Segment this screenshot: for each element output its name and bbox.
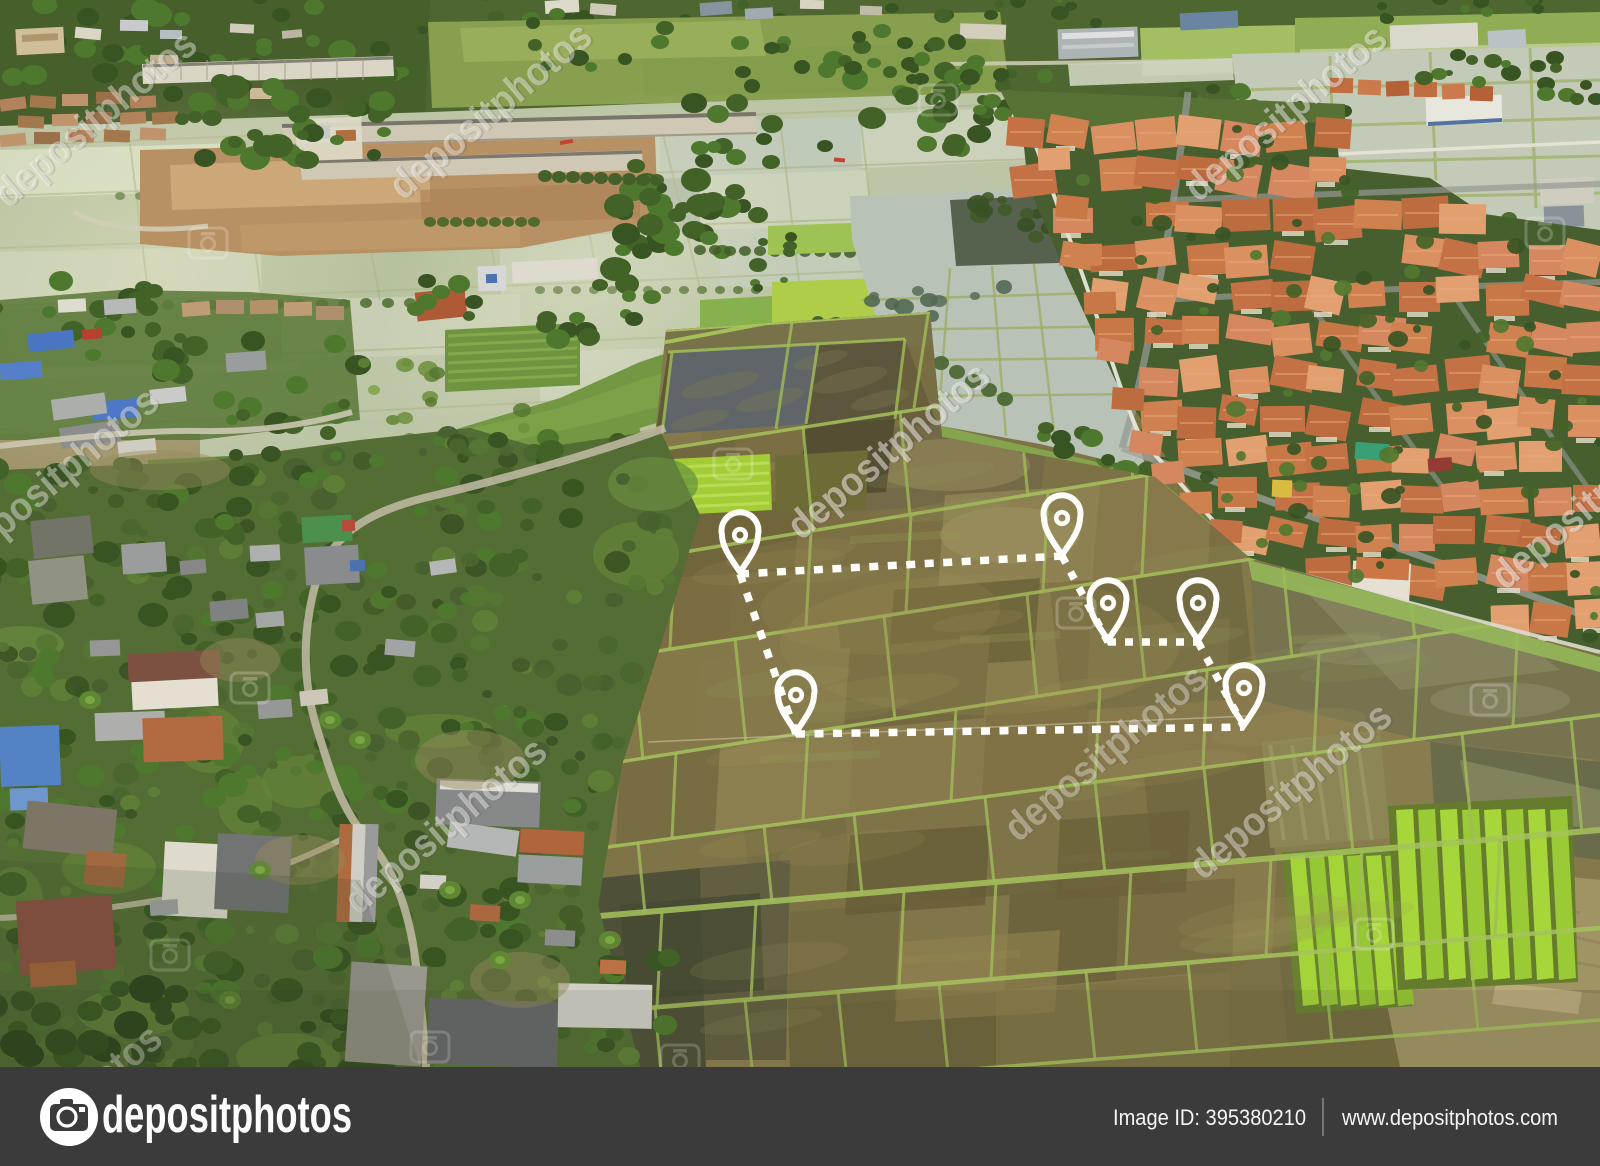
svg-text:depositphotos: depositphotos — [102, 1086, 352, 1144]
svg-text:www.depositphotos.com: www.depositphotos.com — [1341, 1105, 1558, 1130]
svg-text:Image ID: 395380210: Image ID: 395380210 — [1113, 1105, 1306, 1130]
